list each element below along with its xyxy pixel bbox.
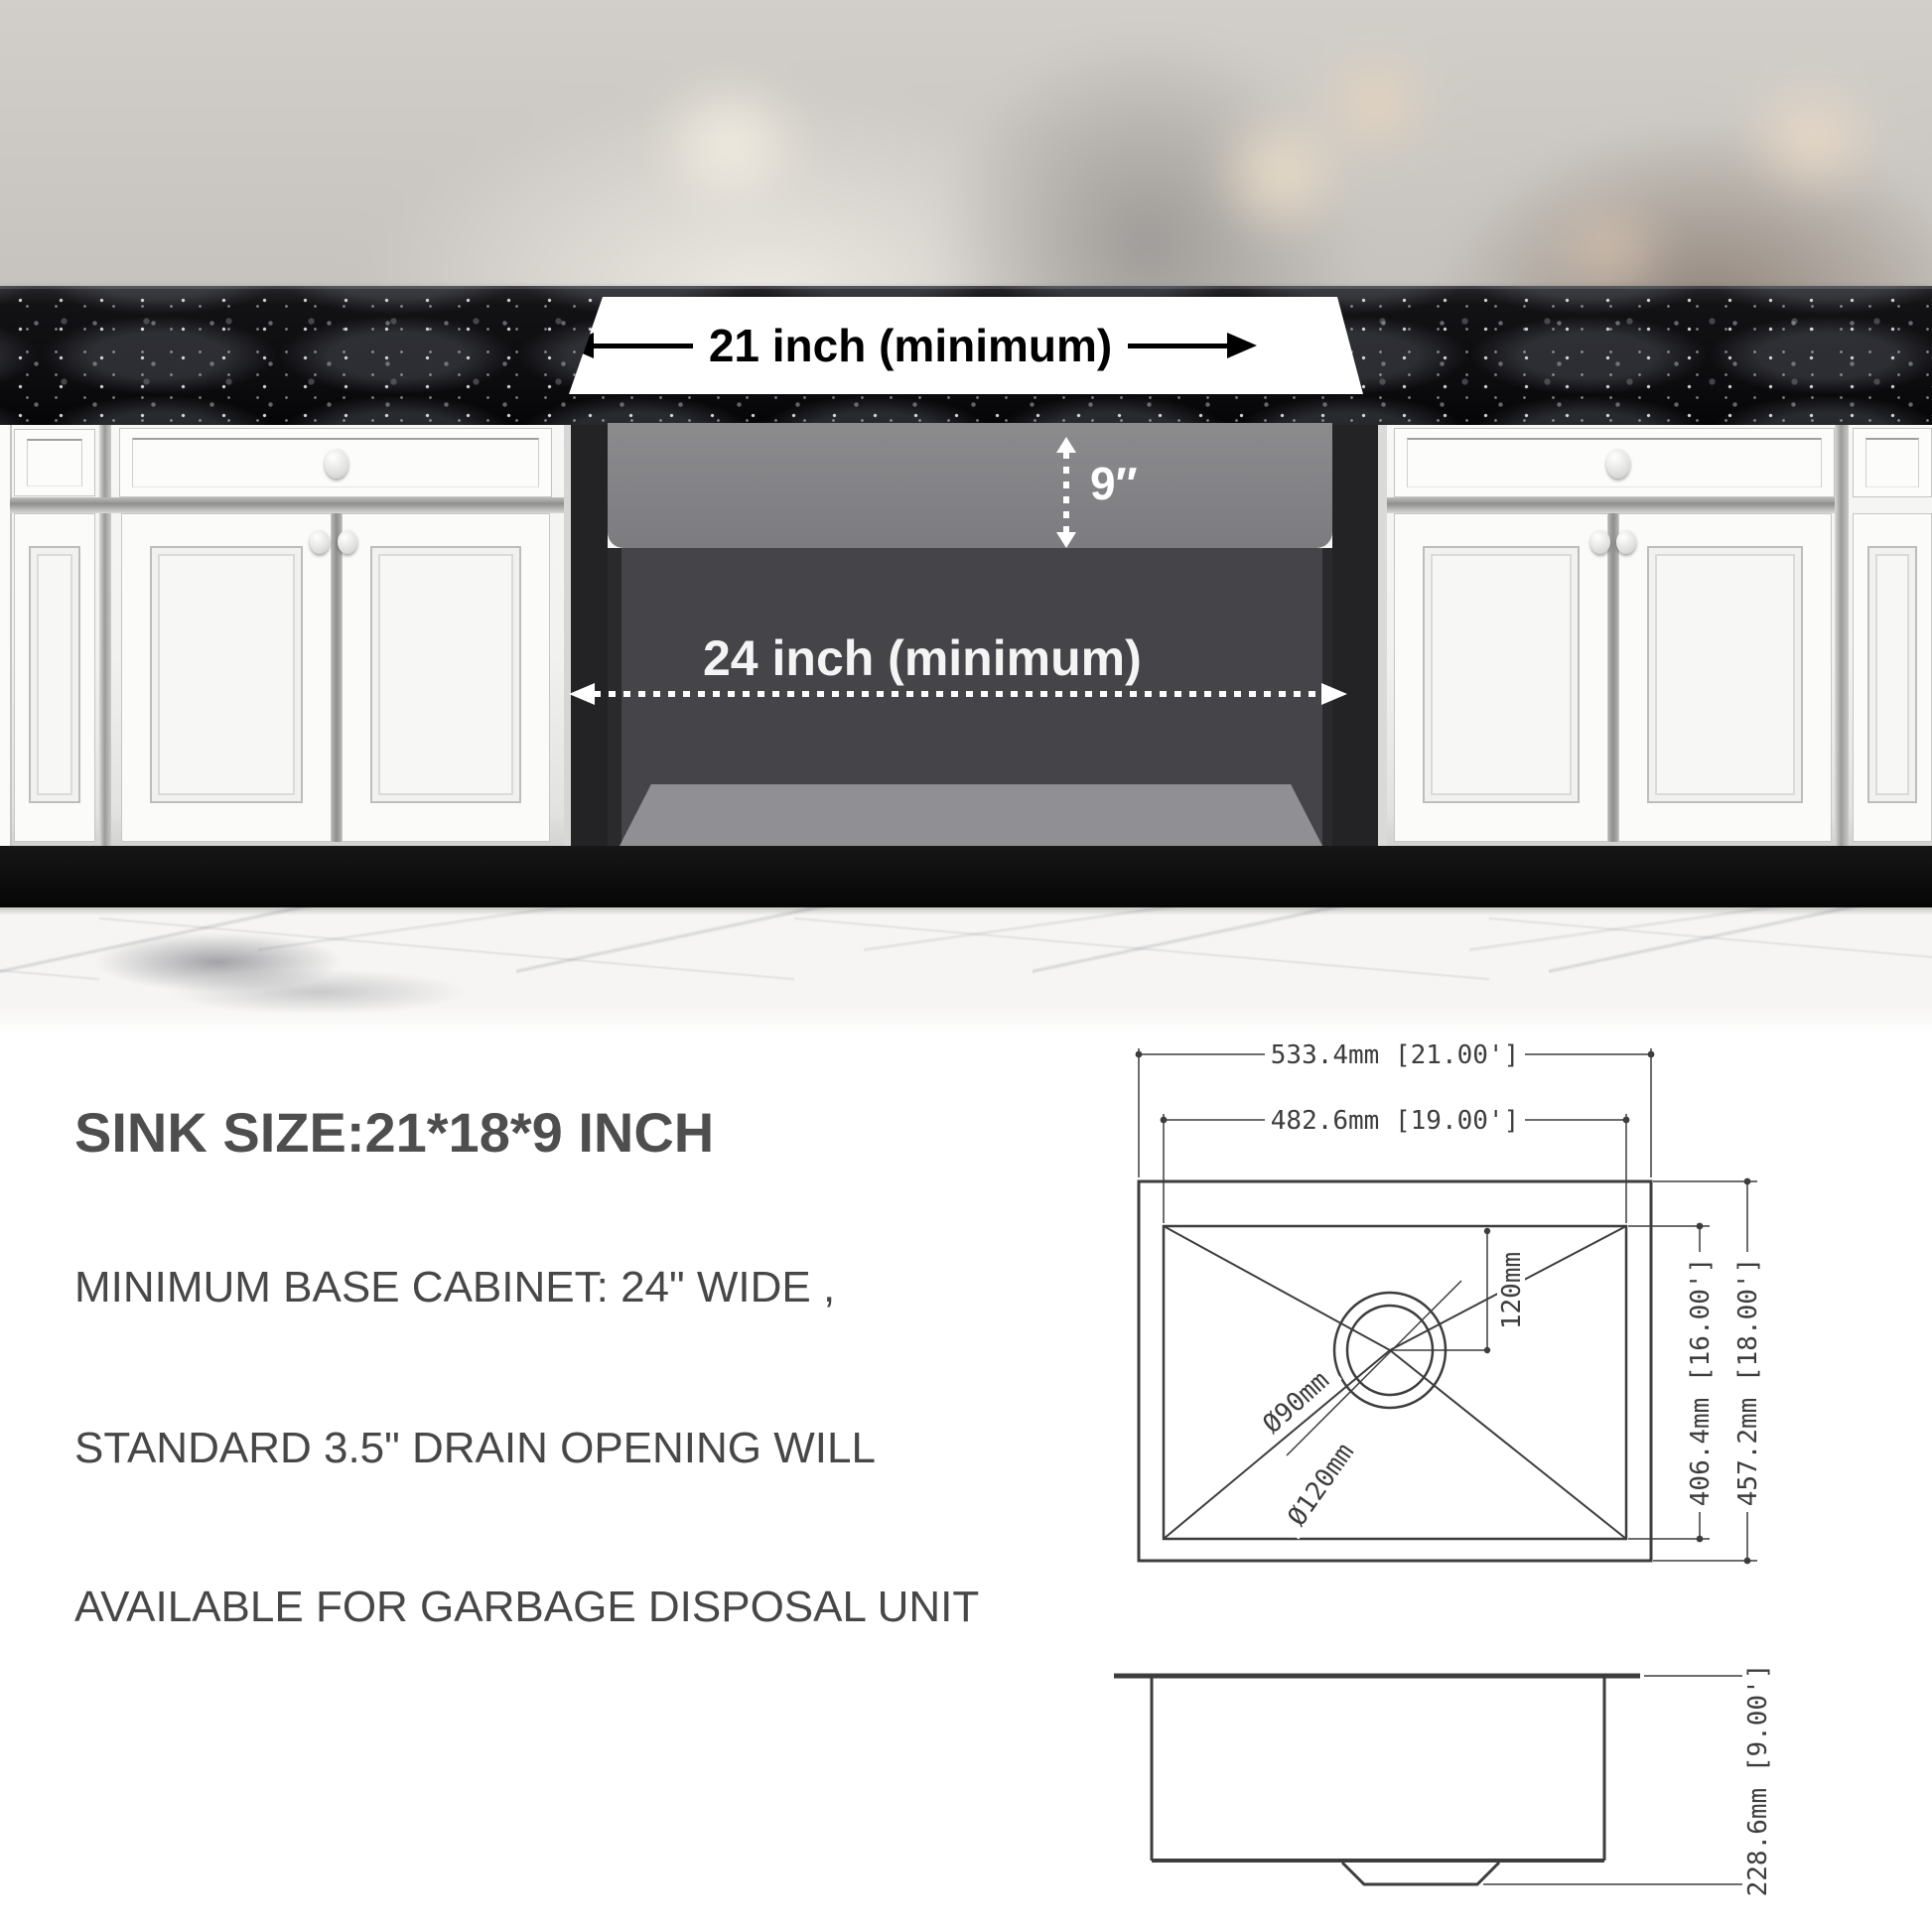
door-knob (338, 530, 357, 554)
drawer-front (1853, 428, 1932, 497)
dim-drain-offset: 120mm (1392, 1228, 1527, 1353)
cabinet-door (121, 513, 332, 842)
technical-drawing: 533.4mm [21.00'] 482.6mm [19.00'] (1042, 1023, 1866, 1932)
sink-top-view-bowl (1164, 1226, 1626, 1539)
drawer-front (119, 428, 552, 497)
drawer-front (1394, 428, 1835, 497)
drawer-knob (1606, 449, 1630, 479)
outer-width-label: 533.4mm [21.00'] (1271, 1040, 1519, 1070)
marble-counter-foreground (0, 907, 1932, 1033)
toe-kick (0, 846, 1932, 907)
drawer-knob (325, 449, 348, 479)
cabinet-divider (1835, 425, 1849, 846)
svg-text:Ø120mm: Ø120mm (1283, 1439, 1360, 1532)
door-knob (1616, 530, 1636, 554)
countertop-width-banner: 21 inch (minimum) (569, 297, 1363, 394)
door-gap (1608, 513, 1618, 842)
cabinet-door (1618, 513, 1832, 842)
sink-depth-label: 9″ (1090, 457, 1138, 510)
door-knob (310, 530, 330, 554)
right-arrow-icon (1128, 333, 1257, 358)
opening-edge (1378, 425, 1387, 846)
cabinet-rail (10, 497, 564, 513)
sink-depth-arrow-icon (1056, 437, 1076, 548)
cabinet-rail (1387, 497, 1839, 513)
cabinet-door (1394, 513, 1608, 842)
base-cabinet-right (1387, 425, 1932, 846)
side-height-label: 228.6mm [9.00'] (1743, 1664, 1773, 1897)
cabinet-left-edge (0, 425, 12, 846)
door-gap (332, 513, 342, 842)
dim-side-height: 228.6mm [9.00'] (1483, 1658, 1773, 1902)
opening-right-wall (1332, 425, 1378, 846)
cabinet-door (14, 513, 95, 842)
spec-line-drain: STANDARD 3.5" DRAIN OPENING WILL (74, 1424, 876, 1473)
base-cabinet-row: 9″ 24 inch (minimum) (0, 425, 1932, 846)
product-dimension-infographic: 21 inch (minimum) (0, 0, 1932, 1932)
dim-bowl-depth: 406.4mm [16.00'] (1628, 1223, 1716, 1543)
cabinet-width-arrow-line (594, 691, 1330, 697)
cabinet-width-arrowhead-right (1321, 683, 1347, 705)
drawer-front (14, 429, 95, 496)
cabinet-divider (99, 425, 111, 846)
cabinet-opening: 9″ 24 inch (minimum) (564, 425, 1387, 846)
drain-offset-label: 120mm (1497, 1252, 1527, 1329)
cabinet-door (342, 513, 550, 842)
base-cabinet-left (0, 425, 564, 846)
sink-side-view (1114, 1676, 1640, 1884)
spec-title: SINK SIZE:21*18*9 INCH (74, 1100, 714, 1165)
bowl-width-label: 482.6mm [19.00'] (1271, 1106, 1519, 1136)
spec-line-cabinet: MINIMUM BASE CABINET: 24" WIDE , (74, 1263, 835, 1312)
countertop-width-label: 21 inch (minimum) (709, 319, 1112, 372)
cabinet-width-label: 24 inch (minimum) (703, 629, 1130, 687)
cabinet-width-arrowhead-left (569, 683, 595, 705)
drain-outer-dia: Ø120mm (1276, 1429, 1366, 1540)
cabinet-door (1853, 513, 1932, 842)
bowl-depth-label: 406.4mm [16.00'] (1686, 1258, 1716, 1506)
cabinet-floor (620, 784, 1322, 846)
sink-top-view-outer (1139, 1181, 1651, 1561)
spec-line-disposal: AVAILABLE FOR GARBAGE DISPOSAL UNIT (74, 1583, 979, 1632)
door-knob (1590, 530, 1610, 554)
dim-bowl-width: 482.6mm [19.00'] (1161, 1104, 1630, 1223)
drain-bump (1342, 1863, 1499, 1884)
opening-edge (564, 425, 571, 846)
kitchen-photo: 21 inch (minimum) (0, 0, 1932, 1033)
opening-left-wall (571, 425, 608, 846)
bowl-slope-lines (1164, 1226, 1626, 1539)
outer-depth-label: 457.2mm [18.00'] (1733, 1258, 1763, 1506)
sink-basin (608, 423, 1332, 548)
drain-inner-dia: Ø90mm (1249, 1358, 1342, 1447)
